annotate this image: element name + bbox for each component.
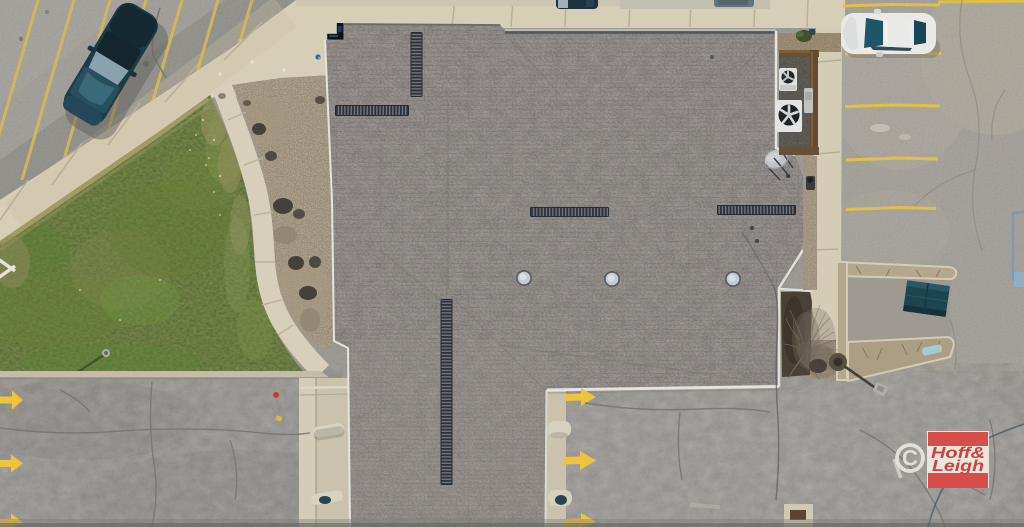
svg-text:Leigh: Leigh bbox=[932, 458, 984, 475]
svg-text:C: C bbox=[902, 446, 918, 471]
